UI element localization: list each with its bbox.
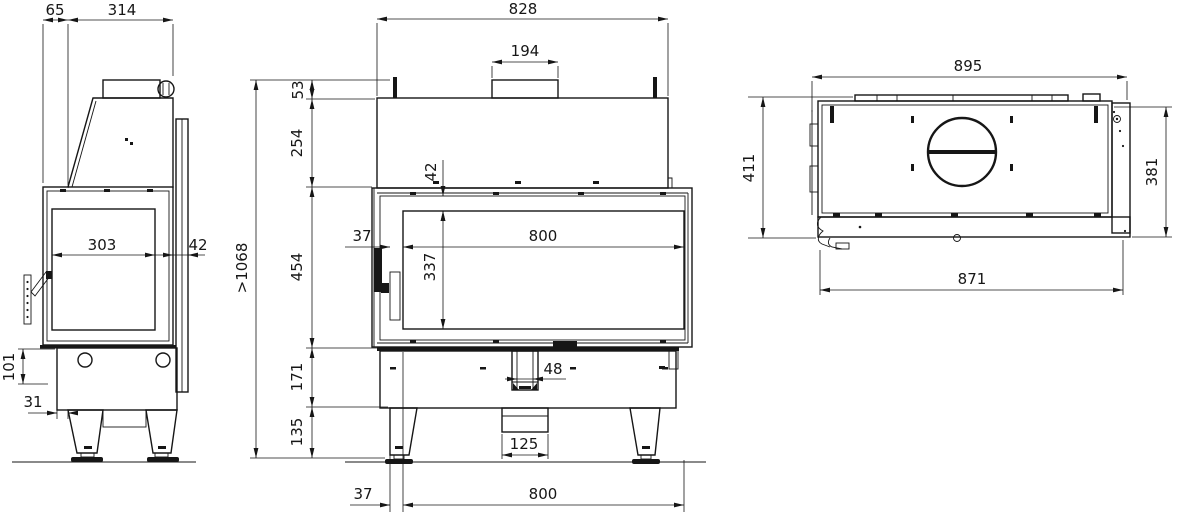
dim-side-frame-depth: 42 (188, 236, 207, 254)
dim-top-overall-width: 895 (954, 57, 983, 75)
dim-top-overall-depth: 411 (740, 154, 758, 183)
dim-front-glass-height: 337 (421, 253, 439, 282)
dim-front-flue-collar-width: 194 (511, 42, 540, 60)
dim-front-min-total-height: >1068 (233, 243, 251, 294)
top-view-dimensions: 895 411 381 871 (740, 57, 1172, 295)
top-view: 895 411 381 871 (740, 57, 1172, 295)
front-view-outline (345, 77, 706, 464)
dim-side-leg-inset: 31 (23, 393, 42, 411)
dim-front-door-height: 454 (288, 253, 306, 282)
air-inlet-channel (512, 351, 538, 390)
dim-front-floor-side-inset: 37 (353, 485, 372, 503)
dim-top-front-frame-width: 871 (958, 270, 987, 288)
dim-front-glass-top-inset: 42 (422, 162, 440, 181)
dim-side-glass-width: 303 (88, 236, 117, 254)
technical-drawing: 65 314 303 42 101 31 (0, 0, 1200, 514)
dim-front-floor-opening-width: 800 (529, 485, 558, 503)
side-view: 65 314 303 42 101 31 (0, 1, 208, 462)
dim-front-base-height: 171 (288, 363, 306, 392)
front-view: 828 194 53 254 454 171 135 >1068 42 (233, 0, 706, 512)
dim-front-hood-height: 254 (288, 129, 306, 158)
dim-side-base-height: 101 (0, 353, 18, 382)
side-door-handle (24, 271, 52, 324)
front-view-dimensions: 828 194 53 254 454 171 135 >1068 42 (233, 0, 684, 512)
dim-side-top-depth: 314 (108, 1, 137, 19)
dim-side-flue-offset: 65 (45, 1, 64, 19)
front-door-handle (374, 248, 400, 320)
dim-top-body-depth: 381 (1143, 158, 1161, 187)
technical-drawing-canvas: 65 314 303 42 101 31 (0, 0, 1200, 514)
dim-front-air-inlet-width: 48 (543, 360, 562, 378)
dim-front-side-inset: 37 (352, 227, 371, 245)
dim-front-overall-width: 828 (509, 0, 538, 18)
dim-front-glass-width: 800 (529, 227, 558, 245)
top-view-outline (810, 94, 1130, 249)
dim-front-bracket-height: 53 (289, 80, 307, 99)
dim-front-duct-width: 125 (510, 435, 539, 453)
dim-front-leg-height: 135 (288, 418, 306, 447)
